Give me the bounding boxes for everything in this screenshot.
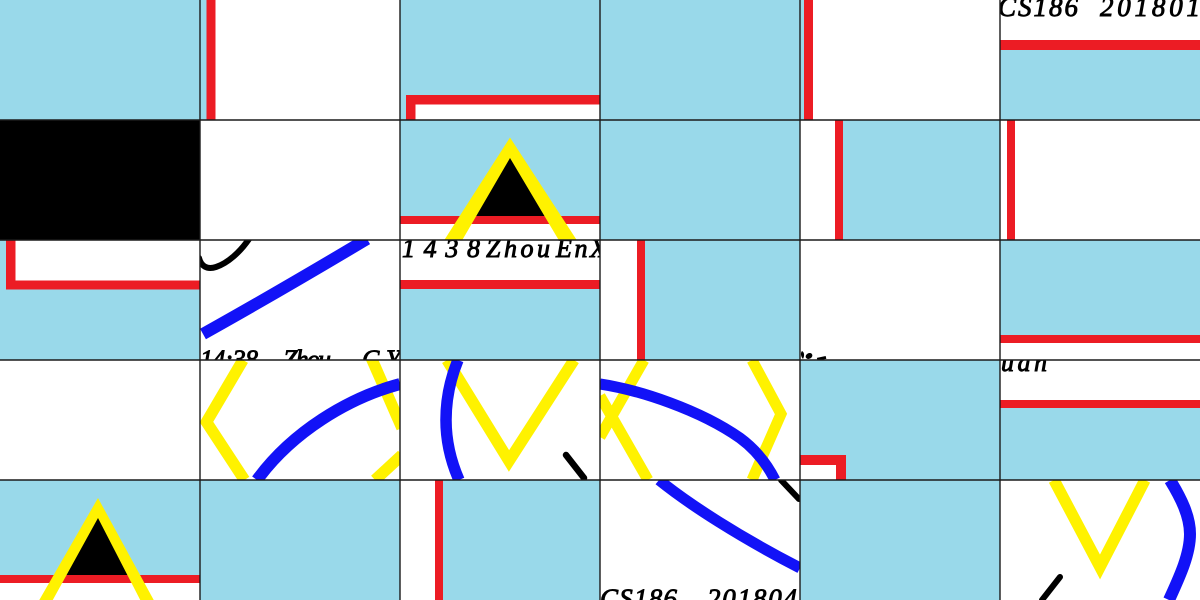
svg-text:CS186: CS186 [998, 0, 1079, 22]
svg-text:CS186: CS186 [600, 584, 678, 600]
